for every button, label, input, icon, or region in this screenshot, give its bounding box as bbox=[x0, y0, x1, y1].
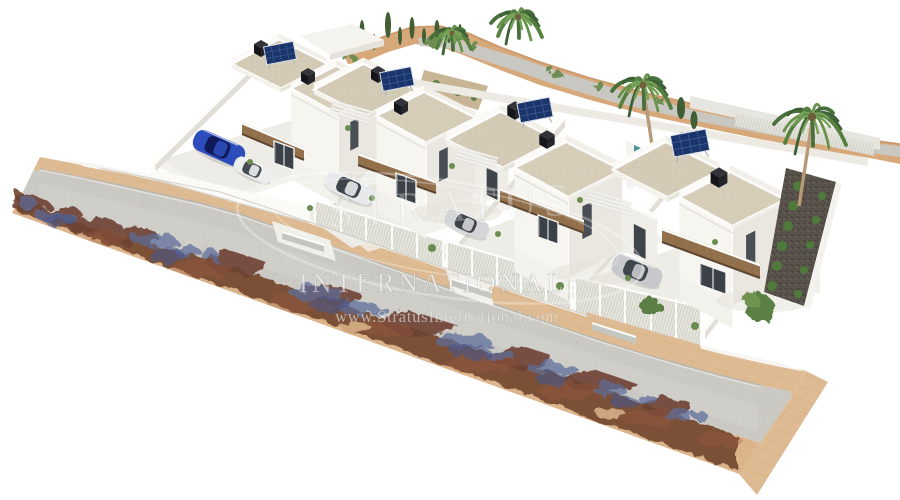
svg-text:INTERNATIONAL: INTERNATIONAL bbox=[299, 268, 567, 298]
svg-text:www.StratusInternational.com: www.StratusInternational.com bbox=[335, 307, 559, 326]
